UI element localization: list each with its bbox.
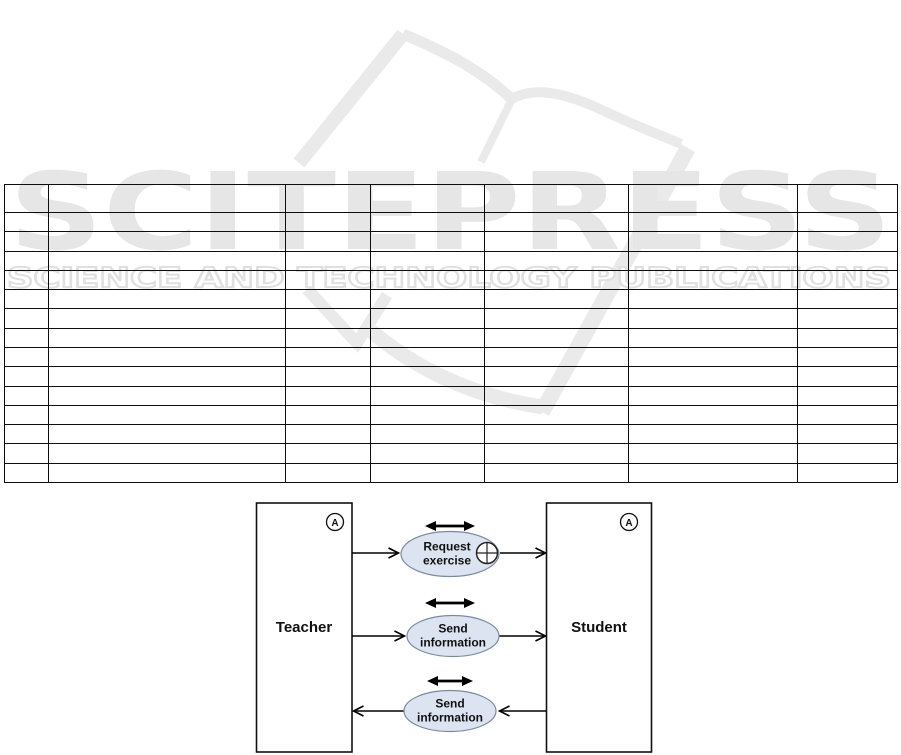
usecase-oval-request-exercise: Request exercise bbox=[401, 532, 499, 577]
usecase-3-label-line1: Send bbox=[435, 697, 464, 711]
usecase-oval-send-information-2: Send information bbox=[404, 691, 496, 732]
usecase-1-label-line2: exercise bbox=[423, 554, 471, 568]
bidirectional-arrow-icon-1 bbox=[425, 521, 475, 531]
bidirectional-arrow-icon-2 bbox=[425, 598, 475, 608]
usecase-1-label-line1: Request bbox=[423, 540, 470, 554]
use-case-diagram: Teacher Student A A bbox=[0, 0, 901, 755]
teacher-badge-letter: A bbox=[331, 518, 338, 529]
usecase-oval-send-information-1: Send information bbox=[407, 616, 499, 657]
usecase-3-label-line2: information bbox=[417, 711, 483, 725]
student-actor-badge-icon: A bbox=[621, 514, 638, 531]
usecase-2-label-line2: information bbox=[420, 636, 486, 650]
extension-point-icon bbox=[477, 543, 498, 564]
usecase-2-label-line1: Send bbox=[438, 622, 467, 636]
document-page: SCITEPRESS SCIENCE AND TECHNOLOGY PUBLIC… bbox=[0, 0, 901, 755]
bidirectional-arrow-icon-3 bbox=[427, 676, 473, 686]
student-actor-label: Student bbox=[571, 619, 627, 636]
student-badge-letter: A bbox=[625, 518, 632, 529]
teacher-actor-label: Teacher bbox=[276, 619, 333, 636]
teacher-actor-badge-icon: A bbox=[327, 514, 344, 531]
